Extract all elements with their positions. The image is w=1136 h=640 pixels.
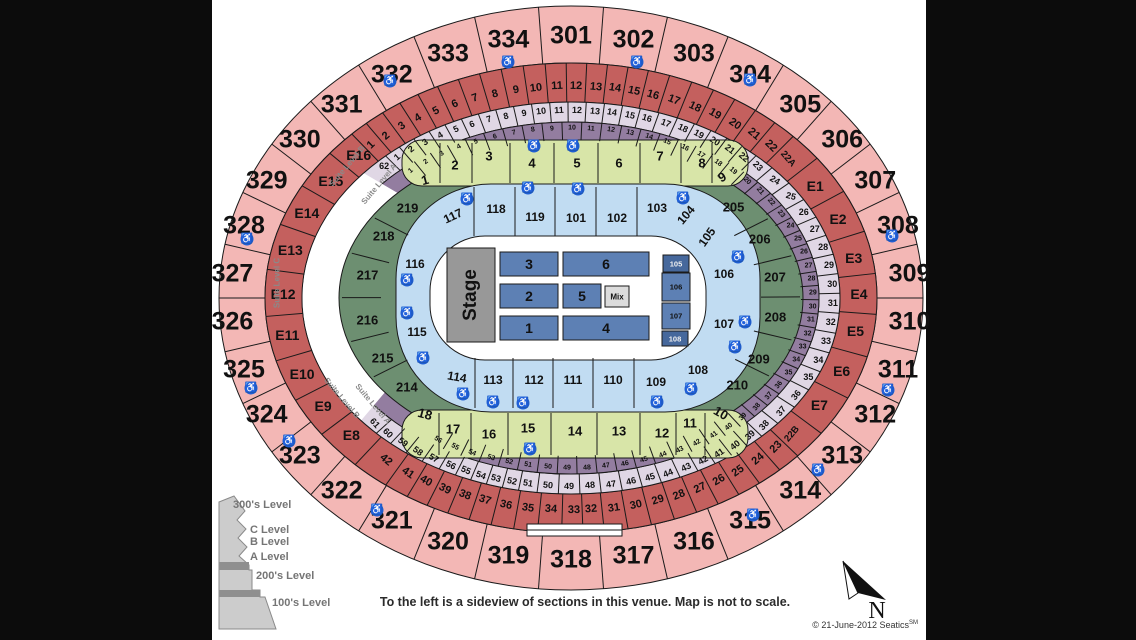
section-label-46[interactable]: 46 <box>625 475 637 487</box>
section-label-101[interactable]: 101 <box>566 211 586 225</box>
section-label-320[interactable]: 320 <box>427 528 469 557</box>
arena-seating-map: 3013023033043053063073083093103113123133… <box>0 0 1136 640</box>
section-label-53[interactable]: 53 <box>486 454 496 463</box>
section-label-pr-13[interactable]: 13 <box>612 424 626 439</box>
section-label-313[interactable]: 313 <box>821 442 863 471</box>
wheelchair-accessible-icon: ♿ <box>457 388 470 401</box>
floor-section-label-4[interactable]: 4 <box>602 320 610 336</box>
section-label-22a[interactable]: 22A <box>778 149 798 169</box>
section-label-54[interactable]: 54 <box>475 468 488 481</box>
section-label-47[interactable]: 47 <box>605 478 616 489</box>
section-label-42[interactable]: 42 <box>696 453 710 467</box>
section-label-322[interactable]: 322 <box>321 477 363 506</box>
section-label-208[interactable]: 208 <box>765 309 787 324</box>
section-label-52[interactable]: 52 <box>505 458 514 467</box>
section-label-e6[interactable]: E6 <box>833 363 850 379</box>
section-label-117[interactable]: 117 <box>441 206 464 227</box>
section-label-24[interactable]: 24 <box>768 173 782 187</box>
section-label-34[interactable]: 34 <box>813 355 823 365</box>
section-label-36[interactable]: 36 <box>499 497 514 511</box>
section-label-40[interactable]: 40 <box>728 437 742 451</box>
premier-box-label-107[interactable]: 107 <box>670 312 683 321</box>
section-label-305[interactable]: 305 <box>779 90 821 119</box>
section-label-13[interactable]: 13 <box>625 129 634 138</box>
wheelchair-accessible-icon: ♿ <box>283 435 296 448</box>
wheelchair-accessible-icon: ♿ <box>522 182 535 195</box>
section-label-pr-7[interactable]: 7 <box>656 149 663 164</box>
section-label-318[interactable]: 318 <box>550 546 592 575</box>
section-label-18[interactable]: 18 <box>676 121 689 134</box>
section-label-41[interactable]: 41 <box>399 464 416 481</box>
section-label-40[interactable]: 40 <box>724 421 734 431</box>
section-label-330[interactable]: 330 <box>279 125 321 154</box>
section-label-217[interactable]: 217 <box>357 267 379 282</box>
section-label-21[interactable]: 21 <box>745 126 762 143</box>
section-label-326[interactable]: 326 <box>212 308 254 337</box>
section-label-22[interactable]: 22 <box>737 150 751 164</box>
section-label-209[interactable]: 209 <box>748 351 770 366</box>
section-label-219[interactable]: 219 <box>397 200 419 215</box>
section-label-331[interactable]: 331 <box>321 90 363 119</box>
section-label-334[interactable]: 334 <box>488 26 530 55</box>
section-labels-layer: 3013023033043053063073083093103113123133… <box>0 0 1136 640</box>
section-label-22[interactable]: 22 <box>763 137 780 154</box>
section-label-60[interactable]: 60 <box>381 426 395 440</box>
section-label-7[interactable]: 7 <box>470 91 480 104</box>
legend-item-a-level: A Level <box>250 551 289 563</box>
section-label-35[interactable]: 35 <box>521 501 535 515</box>
section-label-102[interactable]: 102 <box>607 211 627 225</box>
section-label-55[interactable]: 55 <box>450 442 460 452</box>
section-label-35[interactable]: 35 <box>785 369 793 376</box>
section-label-24[interactable]: 24 <box>749 451 766 468</box>
floor-section-label-6[interactable]: 6 <box>602 256 610 272</box>
section-label-e4[interactable]: E4 <box>850 286 867 302</box>
section-label-4[interactable]: 4 <box>456 143 463 151</box>
section-label-26[interactable]: 26 <box>800 248 808 255</box>
section-label-e13[interactable]: E13 <box>278 242 303 258</box>
section-label-316[interactable]: 316 <box>673 528 715 557</box>
section-label-36[interactable]: 36 <box>789 387 803 401</box>
premier-box-label-106[interactable]: 106 <box>670 283 683 292</box>
section-label-8[interactable]: 8 <box>490 87 499 100</box>
section-label-5[interactable]: 5 <box>473 138 479 146</box>
section-label-112[interactable]: 112 <box>524 373 543 387</box>
wheelchair-accessible-icon: ♿ <box>371 504 384 517</box>
floor-section-label-1[interactable]: 1 <box>525 320 533 336</box>
section-label-20[interactable]: 20 <box>708 134 722 148</box>
section-label-38[interactable]: 38 <box>457 487 473 503</box>
section-label-20[interactable]: 20 <box>741 176 751 186</box>
section-label-56[interactable]: 56 <box>433 435 443 445</box>
section-label-59[interactable]: 59 <box>396 435 410 449</box>
section-label-2[interactable]: 2 <box>406 144 416 155</box>
section-label-8[interactable]: 8 <box>530 126 535 134</box>
section-label-327[interactable]: 327 <box>212 259 254 288</box>
section-label-pr-1[interactable]: 1 <box>420 172 431 188</box>
section-label-49[interactable]: 49 <box>563 464 571 471</box>
wheelchair-accessible-icon: ♿ <box>747 509 760 522</box>
section-label-19[interactable]: 19 <box>727 166 737 176</box>
section-label-15[interactable]: 15 <box>627 84 642 98</box>
section-label-pr-5[interactable]: 5 <box>573 156 580 171</box>
section-label-38[interactable]: 38 <box>756 418 770 432</box>
section-label-25[interactable]: 25 <box>730 462 747 479</box>
section-label-119[interactable]: 119 <box>525 210 544 224</box>
section-label-16[interactable]: 16 <box>641 112 653 124</box>
stage-label: Stage <box>460 269 482 321</box>
section-label-pr-16[interactable]: 16 <box>482 427 496 442</box>
legend-item-100s: 100's Level <box>272 597 330 609</box>
section-label-215[interactable]: 215 <box>372 350 394 365</box>
wheelchair-accessible-icon: ♿ <box>417 352 430 365</box>
section-label-29[interactable]: 29 <box>809 289 817 296</box>
section-label-48[interactable]: 48 <box>585 480 596 491</box>
section-label-210[interactable]: 210 <box>726 378 748 393</box>
section-label-16[interactable]: 16 <box>646 87 661 102</box>
section-label-14[interactable]: 14 <box>644 132 654 141</box>
section-label-111[interactable]: 111 <box>564 373 583 387</box>
section-label-40[interactable]: 40 <box>418 473 435 490</box>
section-label-118[interactable]: 118 <box>486 202 505 216</box>
section-label-2[interactable]: 2 <box>380 129 392 142</box>
section-label-33[interactable]: 33 <box>821 336 831 346</box>
section-label-14[interactable]: 14 <box>608 82 622 96</box>
section-label-e8[interactable]: E8 <box>343 427 360 443</box>
section-label-e14[interactable]: E14 <box>294 205 319 221</box>
section-label-9[interactable]: 9 <box>550 125 554 132</box>
section-label-31[interactable]: 31 <box>607 501 621 515</box>
section-label-55[interactable]: 55 <box>459 464 472 477</box>
section-label-pr-2[interactable]: 2 <box>451 158 458 173</box>
section-label-10[interactable]: 10 <box>536 106 547 117</box>
section-label-23[interactable]: 23 <box>768 438 785 455</box>
section-label-23[interactable]: 23 <box>776 209 786 219</box>
section-label-3[interactable]: 3 <box>420 136 430 147</box>
wheelchair-accessible-icon: ♿ <box>502 56 515 69</box>
section-label-27[interactable]: 27 <box>691 480 707 496</box>
section-label-18[interactable]: 18 <box>687 99 703 115</box>
section-label-324[interactable]: 324 <box>246 400 288 429</box>
section-label-39[interactable]: 39 <box>437 481 453 497</box>
section-label-5[interactable]: 5 <box>430 104 441 117</box>
section-label-pr-17[interactable]: 17 <box>446 422 460 437</box>
wheelchair-accessible-icon: ♿ <box>677 192 690 205</box>
section-label-14[interactable]: 14 <box>607 107 618 118</box>
section-label-319[interactable]: 319 <box>488 541 530 570</box>
section-label-29[interactable]: 29 <box>824 260 834 270</box>
legend-item-300s: 300's Level <box>233 499 291 511</box>
section-label-13[interactable]: 13 <box>589 105 600 116</box>
section-label-39[interactable]: 39 <box>743 428 757 442</box>
section-label-pr-9[interactable]: 9 <box>715 169 729 186</box>
section-label-e2[interactable]: E2 <box>829 211 846 227</box>
section-label-19[interactable]: 19 <box>692 127 706 141</box>
wheelchair-accessible-icon: ♿ <box>631 56 644 69</box>
section-label-16[interactable]: 16 <box>680 143 690 153</box>
section-label-pr-18[interactable]: 18 <box>416 405 434 423</box>
section-label-2[interactable]: 2 <box>422 158 429 166</box>
section-label-9[interactable]: 9 <box>511 83 519 96</box>
section-label-302[interactable]: 302 <box>613 26 655 55</box>
legend-item-b-level: B Level <box>250 536 289 548</box>
section-label-17[interactable]: 17 <box>666 92 682 108</box>
wheelchair-accessible-icon: ♿ <box>572 183 585 196</box>
wheelchair-accessible-icon: ♿ <box>729 341 742 354</box>
section-label-30[interactable]: 30 <box>628 497 643 511</box>
section-label-51[interactable]: 51 <box>524 461 533 469</box>
section-label-pr-10[interactable]: 10 <box>711 403 731 423</box>
section-label-105[interactable]: 105 <box>696 225 719 249</box>
section-label-1[interactable]: 1 <box>407 167 415 175</box>
premier-box-label-105[interactable]: 105 <box>670 259 683 268</box>
section-label-25[interactable]: 25 <box>785 189 797 201</box>
section-label-44[interactable]: 44 <box>662 466 675 479</box>
section-label-42[interactable]: 42 <box>377 452 394 469</box>
wheelchair-accessible-icon: ♿ <box>732 251 745 264</box>
section-label-30[interactable]: 30 <box>809 303 817 310</box>
section-label-37[interactable]: 37 <box>763 391 773 401</box>
section-label-31[interactable]: 31 <box>807 317 815 324</box>
wheelchair-accessible-icon: ♿ <box>812 464 825 477</box>
section-label-7[interactable]: 7 <box>511 129 516 137</box>
section-label-44[interactable]: 44 <box>658 451 668 460</box>
wheelchair-accessible-icon: ♿ <box>461 193 474 206</box>
wheelchair-accessible-icon: ♿ <box>882 384 895 397</box>
premier-box-label-108[interactable]: 108 <box>669 334 682 343</box>
section-label-19[interactable]: 19 <box>707 106 724 123</box>
section-label-50[interactable]: 50 <box>543 480 554 491</box>
section-label-11[interactable]: 11 <box>551 80 563 93</box>
section-label-45[interactable]: 45 <box>639 456 649 465</box>
section-label-206[interactable]: 206 <box>749 231 771 246</box>
section-label-4[interactable]: 4 <box>413 111 425 124</box>
section-label-11[interactable]: 11 <box>554 105 564 115</box>
section-label-15[interactable]: 15 <box>624 109 636 121</box>
wheelchair-accessible-icon: ♿ <box>685 383 698 396</box>
section-label-e9[interactable]: E9 <box>315 398 332 414</box>
section-label-pr-8[interactable]: 8 <box>698 156 705 171</box>
section-label-23[interactable]: 23 <box>751 159 765 173</box>
section-label-6[interactable]: 6 <box>468 118 476 129</box>
section-label-54[interactable]: 54 <box>467 448 477 458</box>
section-label-33[interactable]: 33 <box>799 344 807 351</box>
wheelchair-accessible-icon: ♿ <box>384 75 397 88</box>
section-label-7[interactable]: 7 <box>485 114 493 125</box>
legend-item-200s: 200's Level <box>256 570 314 582</box>
section-label-e5[interactable]: E5 <box>847 323 864 339</box>
wheelchair-accessible-icon: ♿ <box>744 74 757 87</box>
section-label-325[interactable]: 325 <box>223 355 265 384</box>
section-label-22[interactable]: 22 <box>766 197 776 207</box>
mix-label: Mix <box>610 292 623 301</box>
section-label-36[interactable]: 36 <box>774 380 784 390</box>
wheelchair-accessible-icon: ♿ <box>487 396 500 409</box>
section-label-205[interactable]: 205 <box>723 200 745 215</box>
section-label-1[interactable]: 1 <box>392 152 402 163</box>
section-label-27[interactable]: 27 <box>805 262 813 269</box>
section-label-pr-6[interactable]: 6 <box>615 156 622 171</box>
section-label-307[interactable]: 307 <box>854 167 896 196</box>
wheelchair-accessible-icon: ♿ <box>401 307 414 320</box>
section-label-31[interactable]: 31 <box>828 298 838 308</box>
section-label-43[interactable]: 43 <box>679 460 692 473</box>
section-label-109[interactable]: 109 <box>646 375 666 389</box>
section-label-207[interactable]: 207 <box>764 270 786 285</box>
section-label-29[interactable]: 29 <box>650 493 665 508</box>
wheelchair-accessible-icon: ♿ <box>739 316 752 329</box>
section-label-116[interactable]: 116 <box>405 257 424 271</box>
floor-section-label-2[interactable]: 2 <box>525 288 533 304</box>
section-label-pr-11[interactable]: 11 <box>683 416 697 431</box>
section-label-301[interactable]: 301 <box>550 22 592 51</box>
section-label-57[interactable]: 57 <box>427 451 441 465</box>
section-label-218[interactable]: 218 <box>373 229 395 244</box>
section-label-pr-12[interactable]: 12 <box>655 426 669 441</box>
section-label-9[interactable]: 9 <box>520 108 527 119</box>
wheelchair-accessible-icon: ♿ <box>528 140 541 153</box>
section-label-51[interactable]: 51 <box>522 478 534 490</box>
section-label-32[interactable]: 32 <box>585 503 598 516</box>
section-label-pr-14[interactable]: 14 <box>568 424 582 439</box>
section-label-21[interactable]: 21 <box>754 186 764 196</box>
section-label-10[interactable]: 10 <box>530 81 544 94</box>
section-label-38[interactable]: 38 <box>751 402 761 412</box>
section-label-46[interactable]: 46 <box>621 459 630 468</box>
section-label-115[interactable]: 115 <box>407 325 426 339</box>
section-label-214[interactable]: 214 <box>396 380 418 395</box>
section-label-42[interactable]: 42 <box>692 438 702 448</box>
section-label-e3[interactable]: E3 <box>845 250 862 266</box>
section-label-e7[interactable]: E7 <box>811 397 828 413</box>
section-label-58[interactable]: 58 <box>411 444 425 458</box>
section-label-103[interactable]: 103 <box>647 201 667 215</box>
section-label-314[interactable]: 314 <box>779 477 821 506</box>
legend-item-c-level: C Level <box>250 524 289 536</box>
section-label-28[interactable]: 28 <box>808 276 816 283</box>
section-label-104[interactable]: 104 <box>674 203 698 227</box>
section-label-43[interactable]: 43 <box>675 445 685 455</box>
section-label-32[interactable]: 32 <box>804 330 812 337</box>
section-label-303[interactable]: 303 <box>673 39 715 68</box>
section-label-47[interactable]: 47 <box>602 462 611 470</box>
section-label-56[interactable]: 56 <box>444 458 457 471</box>
wheelchair-accessible-icon: ♿ <box>651 396 664 409</box>
section-label-52[interactable]: 52 <box>506 475 518 487</box>
section-label-21[interactable]: 21 <box>723 142 737 156</box>
wheelchair-accessible-icon: ♿ <box>245 382 258 395</box>
section-label-25[interactable]: 25 <box>794 236 802 243</box>
section-label-e1[interactable]: E1 <box>807 178 824 194</box>
section-label-41[interactable]: 41 <box>709 430 719 440</box>
section-label-5[interactable]: 5 <box>452 123 461 134</box>
section-label-216[interactable]: 216 <box>357 313 379 328</box>
section-label-12[interactable]: 12 <box>572 105 582 115</box>
section-label-e10[interactable]: E10 <box>290 366 315 382</box>
trademark-sup: SM <box>909 620 918 626</box>
section-label-10[interactable]: 10 <box>568 124 576 131</box>
section-label-35[interactable]: 35 <box>803 372 813 382</box>
section-label-45[interactable]: 45 <box>644 471 657 484</box>
section-label-18[interactable]: 18 <box>712 158 722 168</box>
wheelchair-accessible-icon: ♿ <box>524 443 537 456</box>
section-label-28[interactable]: 28 <box>818 242 828 252</box>
section-label-329[interactable]: 329 <box>246 167 288 196</box>
suite-level-label: Suite Level C <box>273 258 282 308</box>
section-label-22b[interactable]: 22B <box>782 424 802 444</box>
section-label-107[interactable]: 107 <box>714 317 734 331</box>
map-caption: To the left is a sideview of sections in… <box>370 595 800 609</box>
section-label-113[interactable]: 113 <box>483 373 502 387</box>
wheelchair-accessible-icon: ♿ <box>401 274 414 287</box>
section-label-6[interactable]: 6 <box>450 97 460 110</box>
section-label-50[interactable]: 50 <box>544 463 552 471</box>
section-label-4[interactable]: 4 <box>436 129 445 140</box>
section-label-317[interactable]: 317 <box>613 541 655 570</box>
floor-section-label-3[interactable]: 3 <box>525 256 533 272</box>
section-label-110[interactable]: 110 <box>603 373 622 387</box>
wheelchair-accessible-icon: ♿ <box>241 233 254 246</box>
section-label-48[interactable]: 48 <box>582 464 590 471</box>
section-label-26[interactable]: 26 <box>799 207 809 217</box>
wheelchair-accessible-icon: ♿ <box>517 397 530 410</box>
section-label-333[interactable]: 333 <box>427 39 469 68</box>
section-label-106[interactable]: 106 <box>714 267 734 281</box>
section-label-311[interactable]: 311 <box>878 355 918 384</box>
compass-north-label: N <box>862 598 892 625</box>
section-label-312[interactable]: 312 <box>854 400 896 429</box>
floor-section-label-5[interactable]: 5 <box>578 288 586 304</box>
section-label-310[interactable]: 310 <box>889 308 931 337</box>
section-label-37[interactable]: 37 <box>774 404 788 418</box>
section-label-26[interactable]: 26 <box>711 471 728 488</box>
section-label-12[interactable]: 12 <box>570 80 582 92</box>
section-label-37[interactable]: 37 <box>478 493 493 508</box>
section-label-6[interactable]: 6 <box>492 133 498 141</box>
section-label-39[interactable]: 39 <box>738 412 748 422</box>
section-label-11[interactable]: 11 <box>587 125 595 133</box>
section-label-33[interactable]: 33 <box>567 504 579 516</box>
section-label-13[interactable]: 13 <box>589 80 602 93</box>
section-label-15[interactable]: 15 <box>662 137 672 147</box>
section-label-3[interactable]: 3 <box>396 120 408 133</box>
section-label-24[interactable]: 24 <box>787 223 795 230</box>
section-label-28[interactable]: 28 <box>671 487 687 503</box>
section-label-108[interactable]: 108 <box>688 363 708 377</box>
section-label-34[interactable]: 34 <box>544 503 557 516</box>
section-label-309[interactable]: 309 <box>889 259 931 288</box>
section-label-34[interactable]: 34 <box>792 357 800 364</box>
section-label-17[interactable]: 17 <box>660 116 673 129</box>
section-label-49[interactable]: 49 <box>564 481 574 491</box>
section-label-3[interactable]: 3 <box>439 150 446 158</box>
section-label-e11[interactable]: E11 <box>275 327 299 343</box>
section-label-20[interactable]: 20 <box>726 115 743 132</box>
section-label-114[interactable]: 114 <box>446 368 467 385</box>
section-label-pr-15[interactable]: 15 <box>521 421 535 436</box>
section-label-12[interactable]: 12 <box>607 126 616 134</box>
section-label-pr-3[interactable]: 3 <box>485 149 492 164</box>
section-label-27[interactable]: 27 <box>810 224 820 234</box>
section-label-8[interactable]: 8 <box>503 110 510 121</box>
section-label-53[interactable]: 53 <box>490 472 502 484</box>
section-label-41[interactable]: 41 <box>712 446 726 460</box>
section-label-32[interactable]: 32 <box>826 317 836 327</box>
wheelchair-accessible-icon: ♿ <box>886 230 899 243</box>
section-label-30[interactable]: 30 <box>827 279 837 289</box>
section-label-306[interactable]: 306 <box>821 125 863 154</box>
section-label-pr-4[interactable]: 4 <box>528 156 535 171</box>
